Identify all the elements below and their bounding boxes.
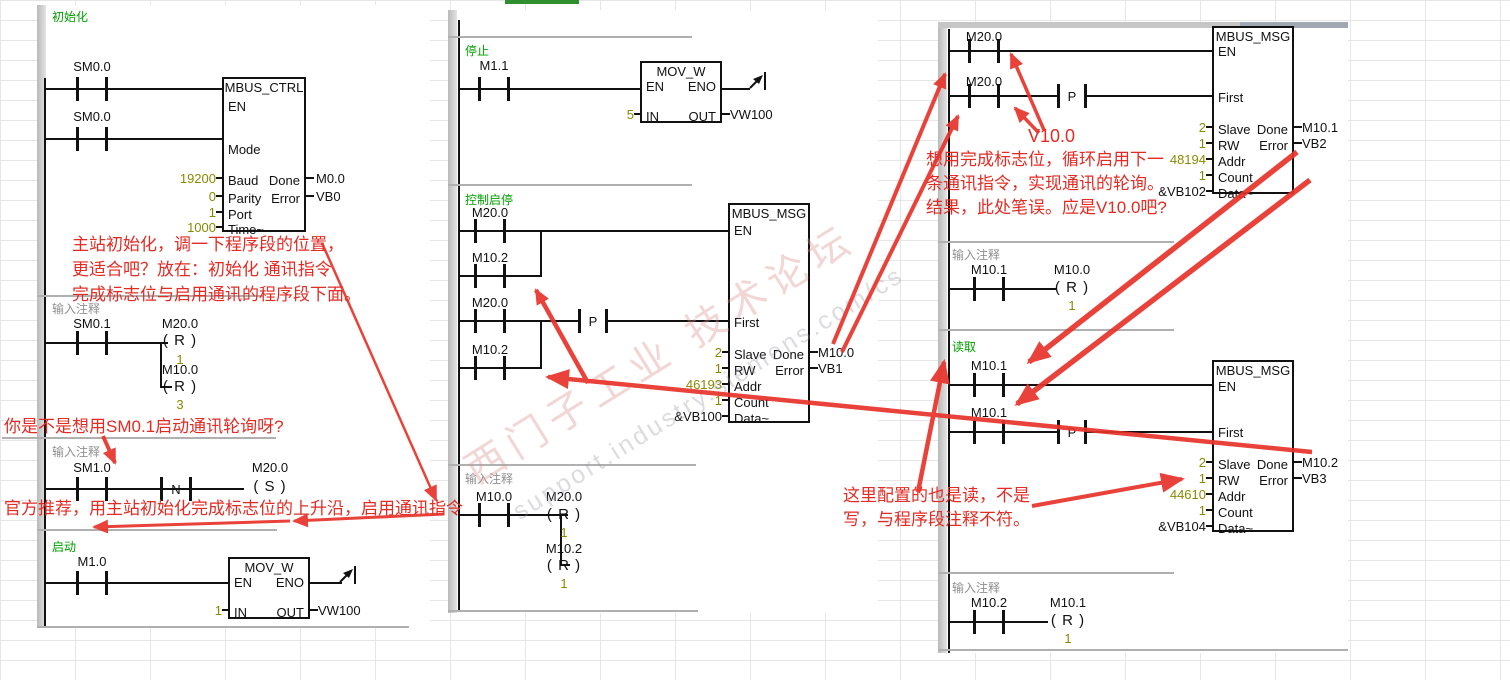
wire xyxy=(722,351,728,353)
contact[interactable] xyxy=(968,39,1000,63)
wire xyxy=(810,351,818,353)
box-output-eno: ENO xyxy=(688,79,716,94)
positive-edge-box[interactable]: P xyxy=(578,309,608,333)
network-title: 输入注释 xyxy=(465,470,513,487)
network-separator xyxy=(2,437,276,439)
contact-label: M1.0 xyxy=(60,554,124,569)
wire xyxy=(1087,431,1212,433)
mov-w-box[interactable]: MOV_W EN ENO IN OUT xyxy=(228,557,310,619)
param-value: 2 xyxy=(652,345,722,360)
param-value: &VB104 xyxy=(1136,519,1206,534)
wire xyxy=(722,367,728,369)
box-input-data: Data~ xyxy=(734,411,769,426)
coil-label: M10.0 xyxy=(146,362,214,377)
box-input-addr: Addr xyxy=(1218,489,1245,504)
wire xyxy=(722,415,728,417)
reset-coil[interactable]: ( R ) xyxy=(146,378,214,395)
box-title: MBUS_MSG xyxy=(1214,29,1292,44)
annotation-text: 写，与程序段注释不符。 xyxy=(843,505,1030,530)
network-title: 停止 xyxy=(465,42,489,59)
box-input-count: Count xyxy=(734,395,769,410)
coil-operand-count: 1 xyxy=(1042,298,1102,313)
open-branch-arrow-icon xyxy=(748,70,770,92)
contact[interactable] xyxy=(973,420,1005,444)
wire xyxy=(722,88,750,90)
box-input-rw: RW xyxy=(734,363,755,378)
network-separator xyxy=(448,464,696,466)
box-input-first: First xyxy=(1218,425,1243,440)
contact[interactable] xyxy=(474,264,506,288)
output-operand: VB2 xyxy=(1302,136,1327,151)
positive-edge-letter: P xyxy=(1068,425,1077,440)
box-input-en: EN xyxy=(734,223,752,238)
network-title: 输入注释 xyxy=(52,443,100,460)
wire xyxy=(1294,461,1302,463)
annotation-text: 完成标志位与启用通讯的程序段下面。 xyxy=(72,280,361,305)
output-operand: M10.1 xyxy=(1302,120,1338,135)
contact-label: M20.0 xyxy=(460,295,520,310)
box-output-done: Done xyxy=(1257,457,1288,472)
box-input-rw: RW xyxy=(1218,138,1239,153)
power-rail xyxy=(44,78,46,628)
contact-label: M10.0 xyxy=(462,489,526,504)
annotation-text: 结果，此处笔误。应是V10.0吧? xyxy=(926,193,1167,218)
power-rail xyxy=(458,20,460,612)
box-input-en: EN xyxy=(1218,44,1236,59)
network-title: 初始化 xyxy=(52,8,88,25)
wire xyxy=(1206,158,1212,160)
mov-w-box[interactable]: MOV_W EN ENO IN OUT xyxy=(640,61,722,123)
contact-label: M10.1 xyxy=(957,358,1021,373)
param-value: 1 xyxy=(156,205,216,220)
param-value: 5 xyxy=(574,107,634,122)
annotation-text: V10.0 xyxy=(1028,126,1075,147)
wire xyxy=(44,88,222,90)
wire xyxy=(722,113,730,115)
network-title: 读取 xyxy=(952,338,976,355)
param-value: &VB100 xyxy=(652,409,722,424)
contact-label: M1.1 xyxy=(462,58,526,73)
box-title: MOV_W xyxy=(230,560,308,575)
wire xyxy=(1206,461,1212,463)
selected-cell-highlight xyxy=(505,0,579,4)
output-operand: VW100 xyxy=(730,107,773,122)
output-operand: M10.2 xyxy=(1302,455,1338,470)
wire xyxy=(722,399,728,401)
reset-coil[interactable]: ( R ) xyxy=(534,557,594,574)
annotation-text: 条通讯指令，实现通讯的轮询。 xyxy=(926,169,1164,194)
annotation-text: 你是不是想用SM0.1启动通讯轮询呀? xyxy=(4,412,284,437)
wire xyxy=(306,177,314,179)
network-separator xyxy=(448,184,692,186)
coil-operand-count: 1 xyxy=(534,576,594,591)
wire xyxy=(1206,142,1212,144)
wire xyxy=(1294,126,1302,128)
annotation-text: 主站初始化，调一下程序段的位置， xyxy=(72,230,344,255)
box-input-data: Data~ xyxy=(1218,186,1253,201)
coil-label: M20.0 xyxy=(240,460,300,475)
wire xyxy=(722,383,728,385)
box-input-slave: Slave xyxy=(1218,457,1251,472)
wire xyxy=(44,582,228,584)
contact[interactable] xyxy=(478,503,510,527)
contact-label: M10.1 xyxy=(957,262,1021,277)
wire xyxy=(540,320,542,369)
reset-coil[interactable]: ( R ) xyxy=(1042,279,1102,296)
param-value: 1 xyxy=(1136,471,1206,486)
wire xyxy=(634,113,640,115)
box-input-en: EN xyxy=(646,79,664,94)
box-input-slave: Slave xyxy=(734,347,767,362)
power-rail xyxy=(948,29,950,653)
wire xyxy=(222,609,228,611)
wire xyxy=(44,138,222,140)
contact[interactable] xyxy=(973,373,1005,397)
contact[interactable] xyxy=(973,610,1005,634)
wire xyxy=(540,230,542,277)
coil-label: M20.0 xyxy=(534,489,594,504)
contact[interactable] xyxy=(76,127,108,151)
positive-edge-letter: P xyxy=(589,314,598,329)
wire xyxy=(1206,493,1212,495)
network-separator xyxy=(938,241,1174,243)
box-title: MBUS_CTRL xyxy=(224,80,304,95)
param-value: 1 xyxy=(162,603,222,618)
wire xyxy=(44,488,244,490)
network-separator xyxy=(448,36,692,38)
box-input-slave: Slave xyxy=(1218,122,1251,137)
coil-label: M10.0 xyxy=(1042,262,1102,277)
output-operand: VW100 xyxy=(318,603,361,618)
positive-edge-box[interactable]: P xyxy=(1057,84,1087,108)
box-input-parity: Parity xyxy=(228,191,261,206)
box-output-error: Error xyxy=(1259,138,1288,153)
wire xyxy=(310,609,318,611)
box-input-rw: RW xyxy=(1218,473,1239,488)
box-input-count: Count xyxy=(1218,505,1253,520)
param-value: 44610 xyxy=(1136,487,1206,502)
param-value: 1 xyxy=(652,361,722,376)
open-branch-arrow-icon xyxy=(338,564,360,586)
annotation-text: 这里配置的也是读，不是 xyxy=(843,481,1030,506)
network-title: 输入注释 xyxy=(952,246,1000,263)
contact-label: SM1.0 xyxy=(60,460,124,475)
wire xyxy=(1206,477,1212,479)
box-input-en: EN xyxy=(234,575,252,590)
box-title: MBUS_MSG xyxy=(730,206,808,221)
network-separator xyxy=(37,529,277,531)
box-output-error: Error xyxy=(271,191,300,206)
wire xyxy=(1206,126,1212,128)
box-output-done: Done xyxy=(269,173,300,188)
coil-operand-count: 3 xyxy=(146,397,214,412)
contact-label: M20.0 xyxy=(460,205,520,220)
param-value: 19200 xyxy=(156,171,216,186)
positive-edge-letter: P xyxy=(1068,89,1077,104)
box-output-done: Done xyxy=(1257,122,1288,137)
box-input-count: Count xyxy=(1218,170,1253,185)
contact[interactable] xyxy=(968,84,1000,108)
annotation-text: 更适合吧？放在：初始化 通讯指令 xyxy=(72,255,332,280)
output-operand: M0.0 xyxy=(316,171,345,186)
wire xyxy=(810,367,818,369)
reset-coil[interactable]: ( R ) xyxy=(146,332,214,349)
reset-coil[interactable]: ( R ) xyxy=(1038,612,1098,629)
positive-edge-box[interactable]: P xyxy=(1057,420,1087,444)
wire xyxy=(1206,509,1212,511)
panel-right-margin xyxy=(938,22,947,653)
coil-label: M10.1 xyxy=(1038,595,1098,610)
wire xyxy=(306,195,314,197)
box-input-en: EN xyxy=(1218,379,1236,394)
contact[interactable] xyxy=(478,77,510,101)
param-value: 0 xyxy=(156,189,216,204)
contact[interactable] xyxy=(973,277,1005,301)
box-output-done: Done xyxy=(773,347,804,362)
wire xyxy=(950,95,1057,97)
contact-label: M10.2 xyxy=(957,595,1021,610)
box-output-error: Error xyxy=(1259,473,1288,488)
contact-label: SM0.0 xyxy=(60,109,124,124)
coil-label: M10.2 xyxy=(534,541,594,556)
wire xyxy=(1206,174,1212,176)
contact-label: M10.2 xyxy=(460,250,520,265)
param-value: 1 xyxy=(1136,503,1206,518)
contact[interactable] xyxy=(474,309,506,333)
output-operand: VB0 xyxy=(316,189,341,204)
contact[interactable] xyxy=(76,571,108,595)
contact[interactable] xyxy=(76,77,108,101)
contact[interactable] xyxy=(474,219,506,243)
wire xyxy=(216,177,222,179)
box-output-eno: ENO xyxy=(276,575,304,590)
wire xyxy=(1206,525,1212,527)
wire xyxy=(216,226,222,228)
network-title: 输入注释 xyxy=(952,579,1000,596)
contact-label: M10.1 xyxy=(957,405,1021,420)
box-input-first: First xyxy=(1218,90,1243,105)
contact-label: M10.2 xyxy=(460,342,520,357)
box-input-baud: Baud xyxy=(228,173,258,188)
contact-label: SM0.0 xyxy=(60,59,124,74)
annotation-text: 官方推荐，用主站初始化完成标志位的上升沿，启用通讯指令 xyxy=(4,494,463,519)
contact[interactable] xyxy=(474,356,506,380)
mbus-ctrl-box[interactable]: MBUS_CTRL EN Mode Baud Parity Port Time~… xyxy=(222,77,306,232)
box-input-mode: Mode xyxy=(228,142,261,157)
box-input-data: Data~ xyxy=(1218,521,1253,536)
network-title: 启动 xyxy=(52,538,76,555)
box-input-addr: Addr xyxy=(1218,154,1245,169)
annotation-text: 想用完成标志位，循环启用下一 xyxy=(926,145,1164,170)
param-value: 2 xyxy=(1136,455,1206,470)
box-output-out: OUT xyxy=(277,605,304,620)
output-operand: VB1 xyxy=(818,361,843,376)
contact[interactable] xyxy=(76,331,108,355)
wire xyxy=(1087,95,1212,97)
panel-middle-margin xyxy=(448,10,457,613)
coil-operand-count: 1 xyxy=(534,525,594,540)
network-separator xyxy=(938,329,1174,331)
box-output-out: OUT xyxy=(689,109,716,124)
param-value: 1 xyxy=(652,393,722,408)
panel-bottom-edge xyxy=(37,626,409,628)
output-operand: VB3 xyxy=(1302,471,1327,486)
output-operand: M10.0 xyxy=(818,345,854,360)
mbus-msg-box[interactable]: MBUS_MSG EN First Slave RW Addr Count Da… xyxy=(1212,360,1294,532)
param-value: 2 xyxy=(1136,120,1206,135)
mbus-msg-box[interactable]: MBUS_MSG EN First Slave RW Addr Count Da… xyxy=(728,203,810,423)
network-separator xyxy=(938,572,1174,574)
wire xyxy=(608,320,728,322)
wire xyxy=(1294,142,1302,144)
wire xyxy=(1294,477,1302,479)
panel-bottom-edge xyxy=(938,649,1348,651)
box-title: MBUS_MSG xyxy=(1214,363,1292,378)
box-input-first: First xyxy=(734,315,759,330)
box-input-port: Port xyxy=(228,207,252,222)
contact-label: SM0.1 xyxy=(60,316,124,331)
param-value: 46193 xyxy=(652,377,722,392)
box-input-addr: Addr xyxy=(734,379,761,394)
coil-operand-count: 1 xyxy=(1038,631,1098,646)
box-title: MOV_W xyxy=(642,64,720,79)
wire xyxy=(216,195,222,197)
coil-label: M20.0 xyxy=(146,316,214,331)
mbus-msg-box[interactable]: MBUS_MSG EN First Slave RW Addr Count Da… xyxy=(1212,26,1294,194)
panel-bottom-edge xyxy=(448,610,698,612)
wire xyxy=(216,211,222,213)
reset-coil[interactable]: ( R ) xyxy=(534,506,594,523)
wire xyxy=(1206,190,1212,192)
set-coil[interactable]: ( S ) xyxy=(240,478,300,495)
box-input-en: EN xyxy=(228,99,246,114)
box-input-in: IN xyxy=(646,109,659,124)
box-output-error: Error xyxy=(775,363,804,378)
box-input-in: IN xyxy=(234,605,247,620)
